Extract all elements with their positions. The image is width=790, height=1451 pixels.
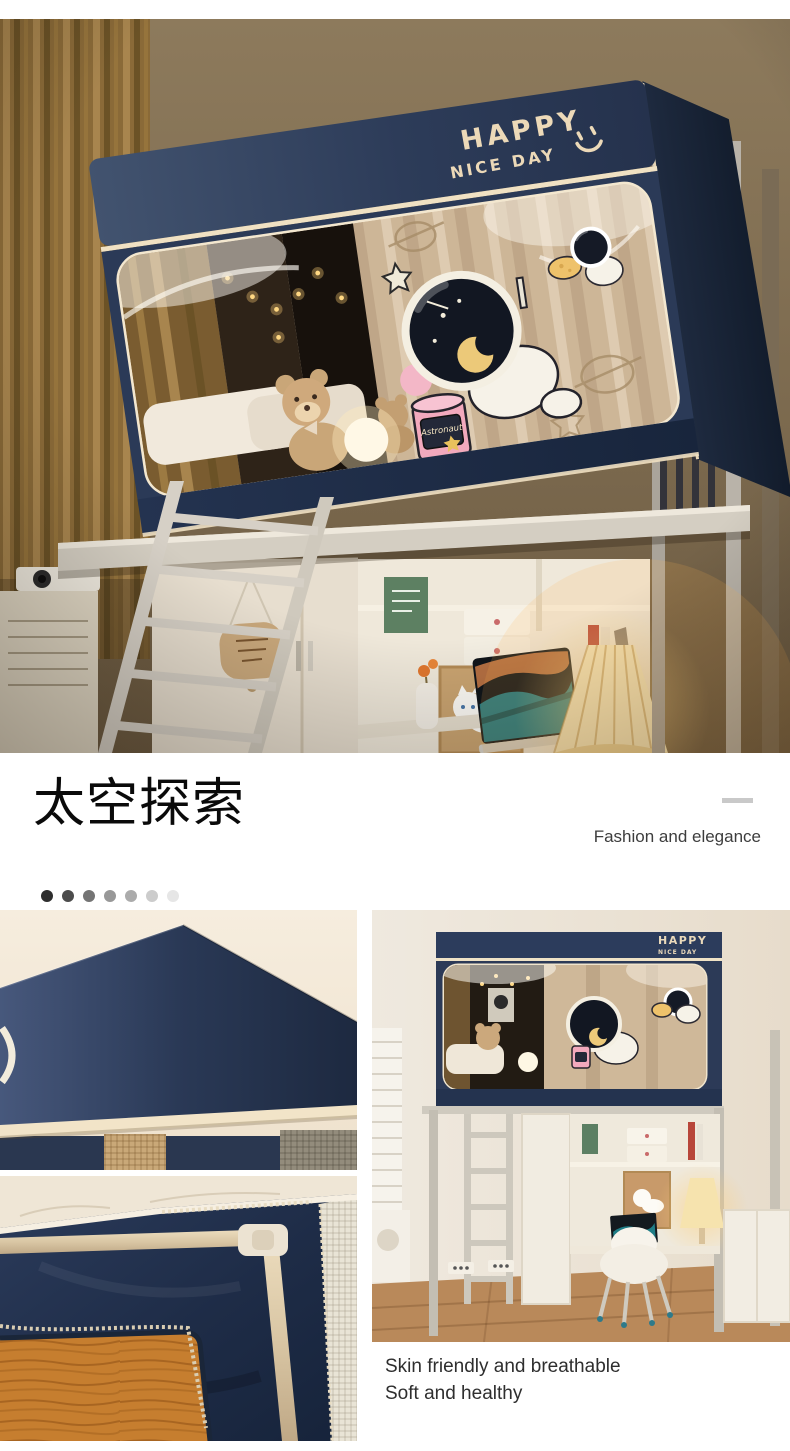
photo-dorm-room-full: HAPPY NICE DAY — [372, 910, 790, 1342]
detail-photo-frame-zipper — [0, 1176, 357, 1441]
detail-photo-canopy-corner — [0, 910, 357, 1170]
pagination-dot — [125, 890, 137, 902]
page-title: 太空探索 — [33, 775, 245, 835]
caption-line2: Soft and healthy — [385, 1380, 621, 1407]
pagination-dot — [41, 890, 53, 902]
pagination-dot — [167, 890, 179, 902]
pagination-dot — [62, 890, 74, 902]
detail-caption: Skin friendly and breathable Soft and he… — [385, 1353, 621, 1407]
caption-line1: Skin friendly and breathable — [385, 1353, 621, 1380]
hero-photo-loft-bed-canopy: HAPPY NICE DAY — [0, 19, 790, 753]
section-gallery: HAPPY NICE DAY — [0, 910, 790, 1451]
wood-board — [0, 1332, 210, 1441]
accent-dash — [722, 798, 753, 803]
room-brand-line2: NICE DAY — [658, 949, 697, 956]
room-canopy-interior — [436, 952, 726, 1089]
pagination-dot — [146, 890, 158, 902]
tagline: Fashion and elegance — [594, 827, 761, 847]
pagination-dots — [41, 890, 179, 902]
pagination-dot — [83, 890, 95, 902]
hero-illustration: HAPPY NICE DAY — [0, 19, 790, 753]
room-brand-line1: HAPPY — [658, 934, 707, 947]
pagination-dot — [104, 890, 116, 902]
section-headline: 太空探索 Fashion and elegance — [0, 753, 790, 910]
product-detail-page: HAPPY NICE DAY — [0, 0, 790, 1451]
room-bed-canopy: HAPPY NICE DAY — [436, 932, 726, 1111]
